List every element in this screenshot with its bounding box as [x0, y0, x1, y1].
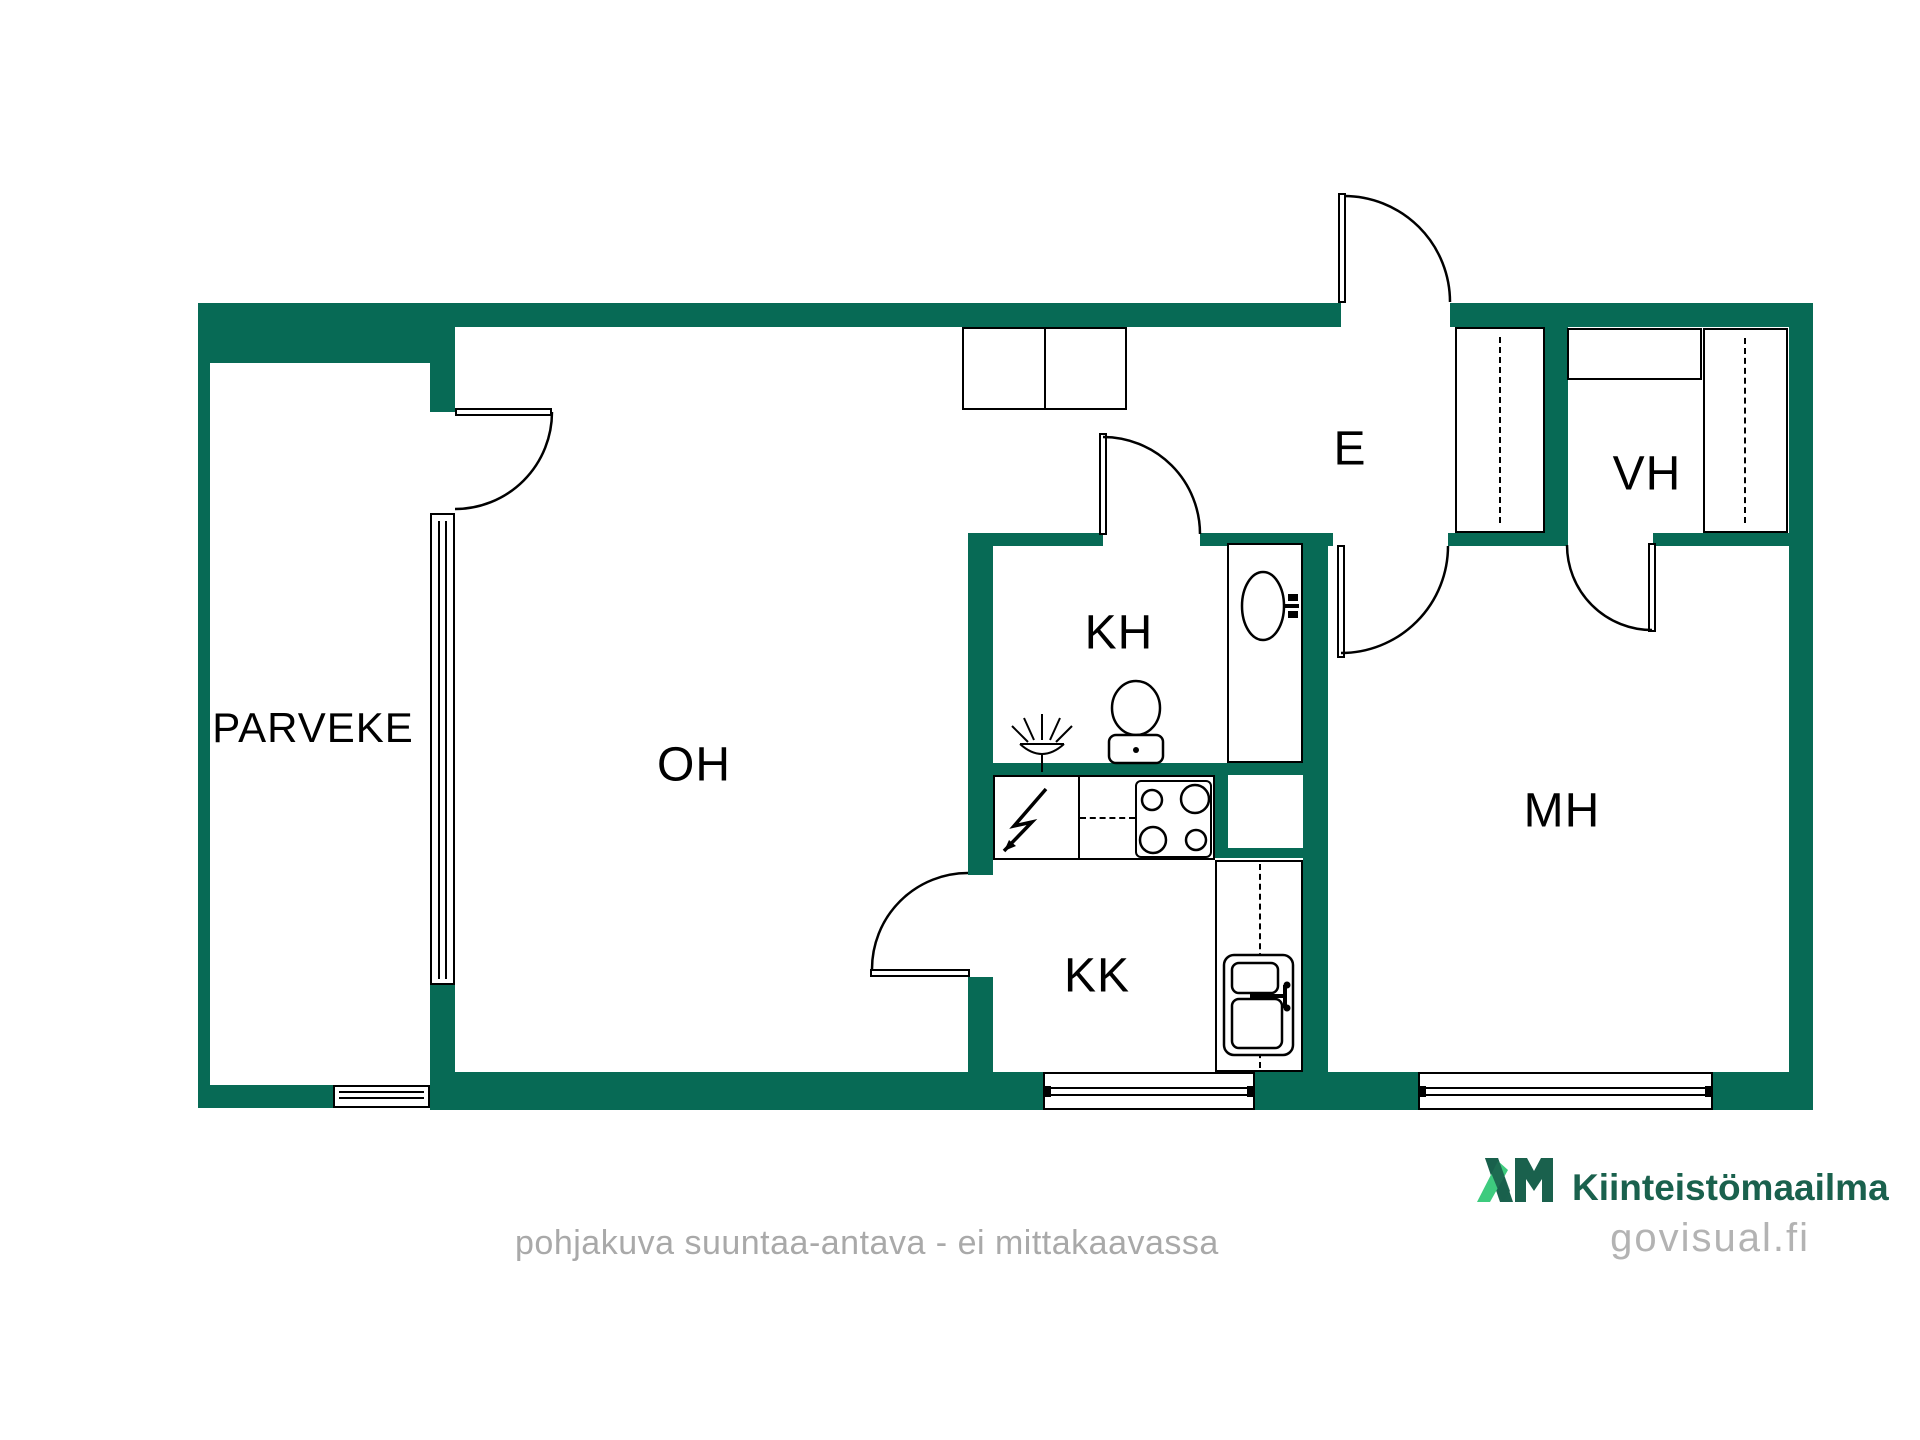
room-label-kk: KK — [1064, 949, 1130, 1004]
drain-icon — [1012, 714, 1072, 772]
kitchen-sink-icon — [1224, 955, 1293, 1055]
room-label-kh: KH — [1085, 606, 1154, 661]
floorplan-canvas: PARVEKE OH KH KK E VH MH pohjakuva suunt… — [0, 0, 1920, 1440]
disclaimer-text: pohjakuva suuntaa-antava - ei mittakaava… — [515, 1224, 1219, 1263]
kh-door-arc — [1103, 437, 1200, 534]
mh-door-arc — [1341, 546, 1448, 653]
room-label-vh: VH — [1613, 447, 1682, 502]
toilet-icon — [1109, 681, 1163, 763]
washbasin-icon — [1242, 572, 1299, 640]
brand-company-text: Kiinteistömaailma — [1572, 1167, 1889, 1209]
room-label-mh: MH — [1524, 784, 1601, 839]
room-label-oh: OH — [657, 738, 731, 793]
room-label-parveke: PARVEKE — [212, 704, 414, 752]
room-label-e: E — [1333, 422, 1366, 477]
balcony-door-arc — [455, 412, 552, 509]
brand-website-text: govisual.fi — [1610, 1216, 1810, 1261]
lightning-icon — [1004, 789, 1046, 851]
km-logo-icon — [1477, 1157, 1565, 1203]
entrance-door-arc — [1344, 196, 1450, 302]
stove-burners-icon — [1140, 785, 1209, 853]
vh-door-arc — [1567, 545, 1652, 630]
kk-door-arc — [872, 873, 968, 969]
